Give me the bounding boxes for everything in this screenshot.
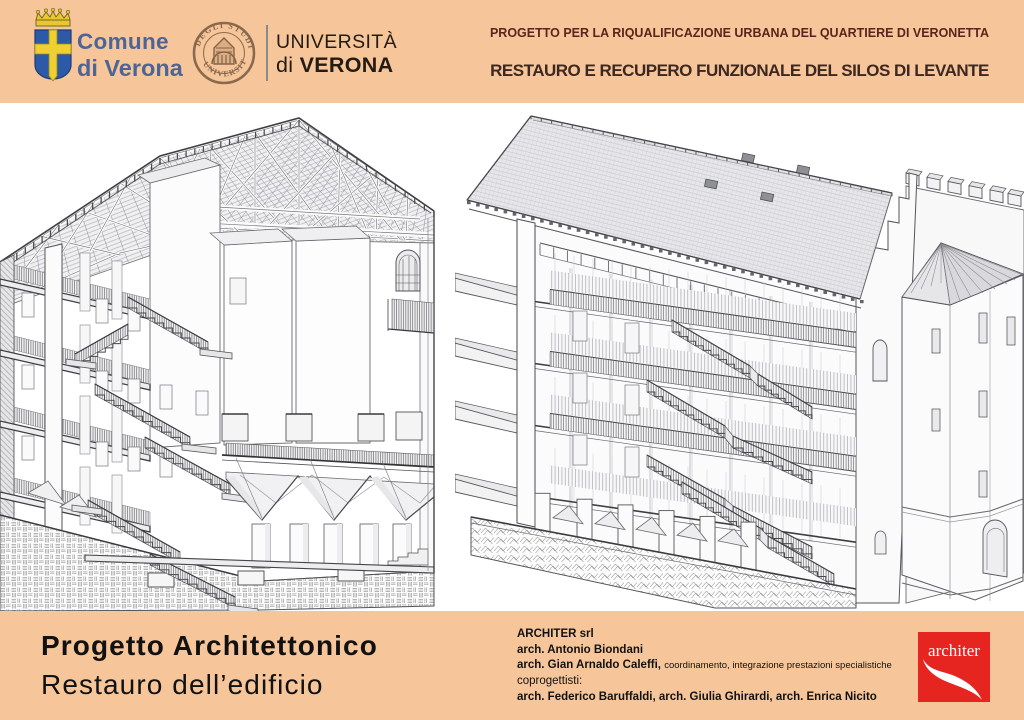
svg-text:architer: architer — [928, 641, 980, 660]
